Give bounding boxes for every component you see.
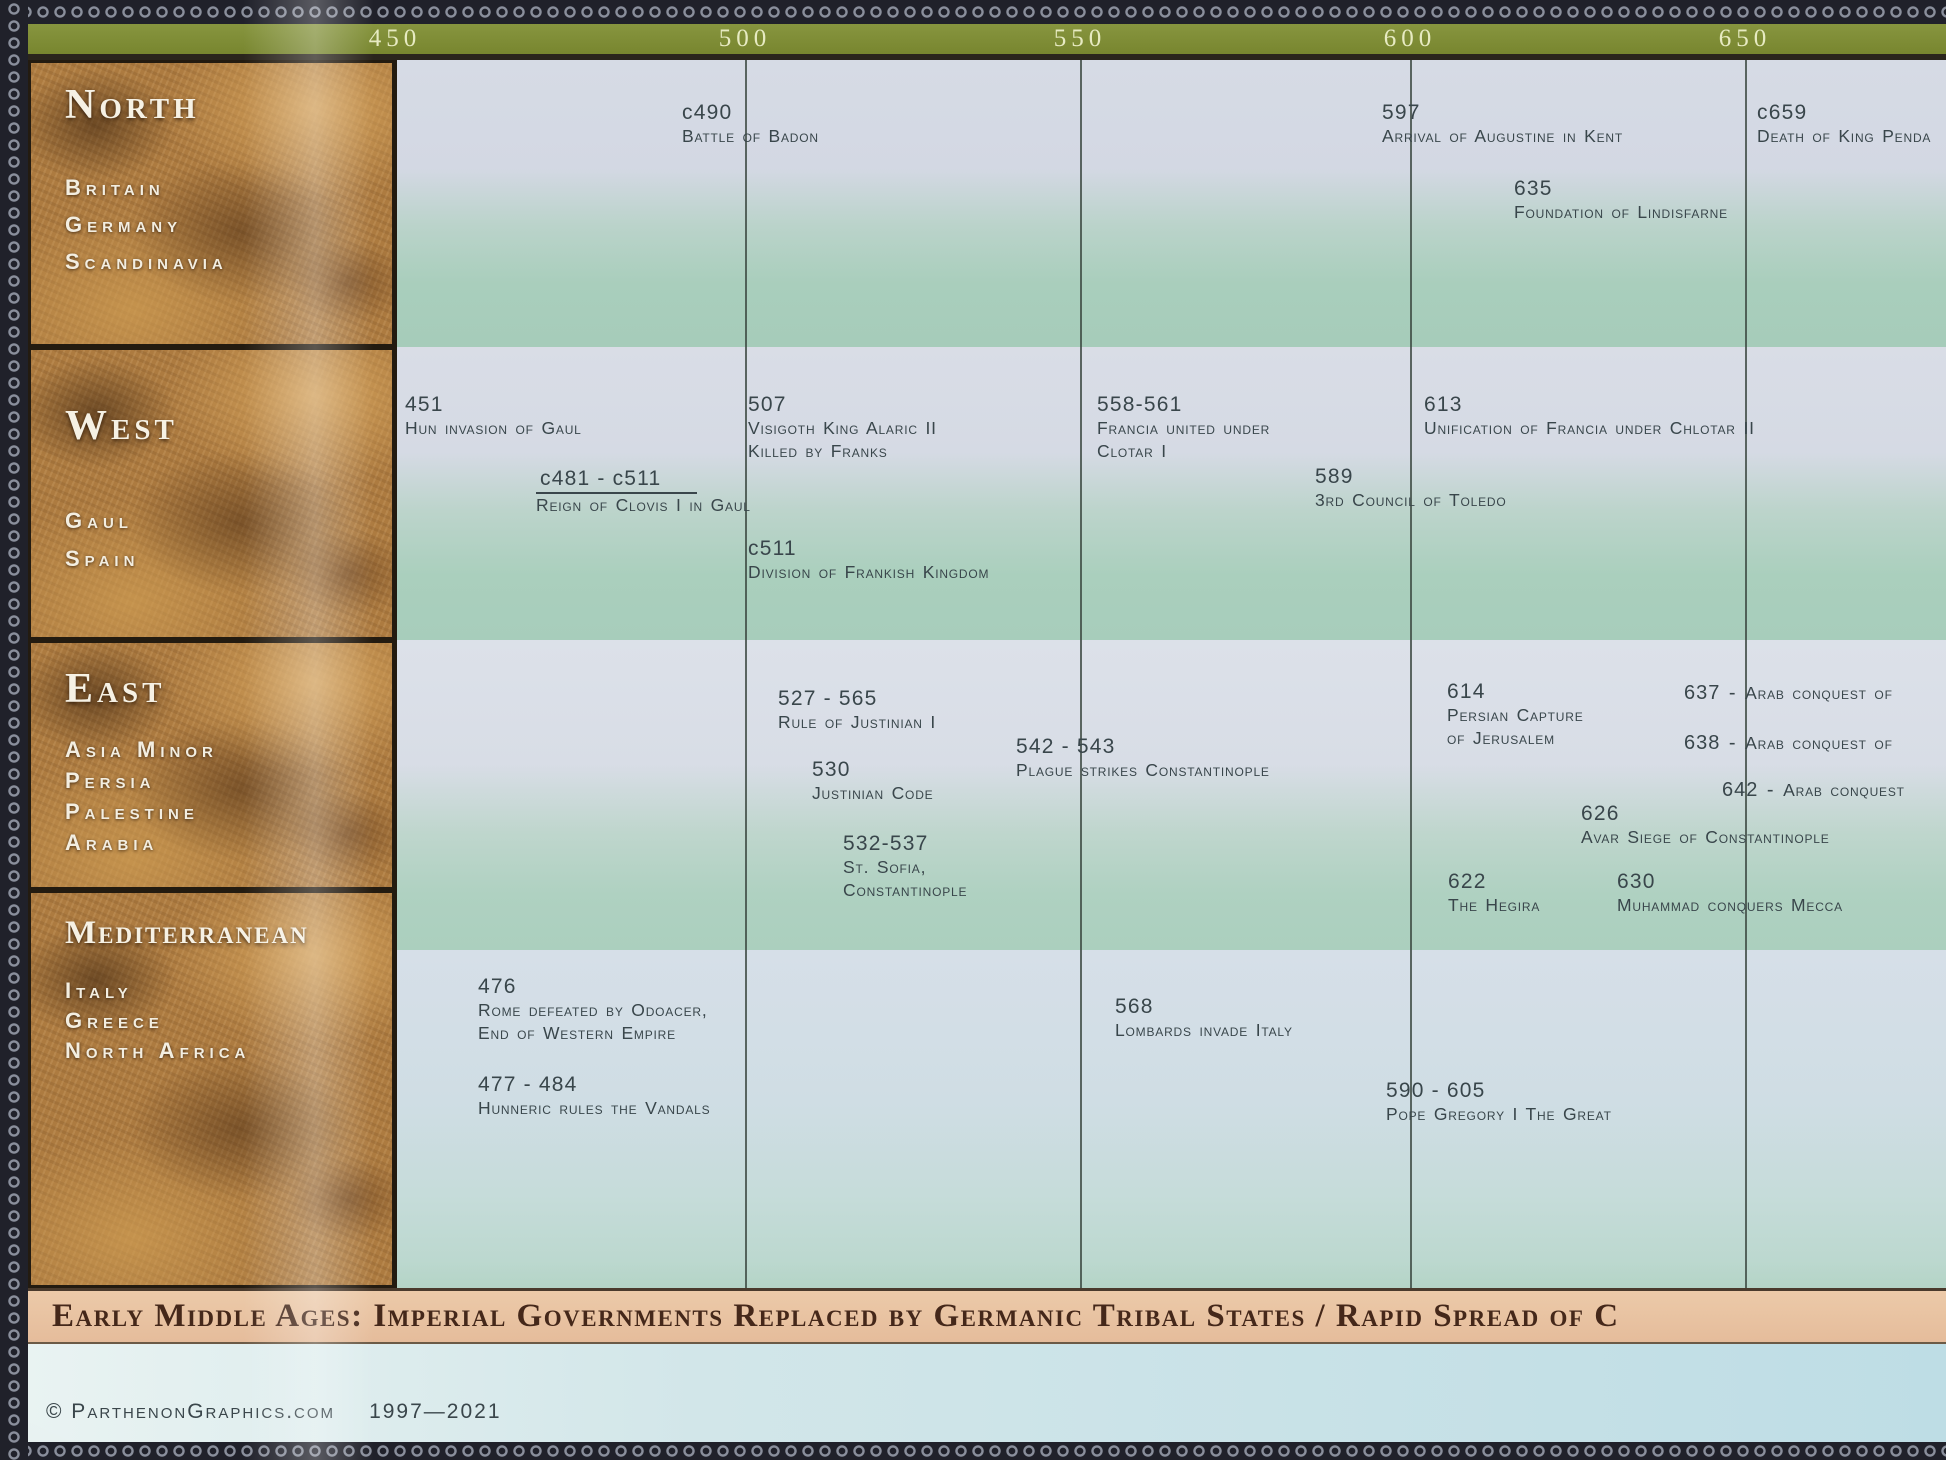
- gridline-500: [745, 60, 747, 1288]
- timeline-event-622: 622The Hegira: [1448, 869, 1540, 917]
- event-label: Avar Siege of Constantinople: [1581, 826, 1830, 849]
- event-label: Visigoth King Alaric II: [748, 417, 937, 440]
- timeline-event-613: 613Unification of Francia under Chlotar …: [1424, 392, 1755, 440]
- event-date: 597: [1382, 100, 1623, 125]
- event-date: 558-561: [1097, 392, 1270, 417]
- year-label-450: 450: [369, 25, 422, 53]
- timeline-event-477-484: 477 - 484Hunneric rules the Vandals: [478, 1072, 710, 1120]
- timeline-poster: NorthBritainGermanyScandinaviaWestGaulSp…: [0, 0, 1946, 1460]
- event-label: Foundation of Lindisfarne: [1514, 201, 1728, 224]
- map-region-scandinavia: Scandinavia: [65, 249, 228, 275]
- map-region-italy: Italy: [65, 978, 133, 1004]
- gridline-550: [1080, 60, 1082, 1288]
- event-date: 542 - 543: [1016, 734, 1270, 759]
- timeline-event-589: 5893rd Council of Toledo: [1315, 464, 1506, 512]
- copyright-years: 1997—2021: [369, 1400, 501, 1423]
- event-date: 637 -: [1684, 682, 1745, 704]
- map-panel-east: EastAsia MinorPersiaPalestineArabia: [28, 640, 397, 890]
- celtic-border-top: [0, 0, 1946, 24]
- event-label: Division of Frankish Kingdom: [748, 561, 989, 584]
- year-label-650: 650: [1719, 25, 1772, 53]
- copyright-text: © ParthenonGraphics.com: [46, 1400, 335, 1423]
- map-region-germany: Germany: [65, 212, 182, 238]
- timeline-event-637: 637 - Arab conquest of: [1684, 682, 1893, 705]
- event-label: Reign of Clovis I in Gaul: [536, 494, 751, 517]
- event-label: Pope Gregory I The Great: [1386, 1103, 1612, 1126]
- celtic-border-left: [0, 0, 28, 1460]
- celtic-border-bottom: [0, 1442, 1946, 1460]
- event-label: The Hegira: [1448, 894, 1540, 917]
- event-date: c659: [1757, 100, 1931, 125]
- map-region-britain: Britain: [65, 175, 165, 201]
- map-panel-med: MediterraneanItalyGreeceNorth Africa: [28, 890, 397, 1288]
- event-date: 568: [1115, 994, 1293, 1019]
- event-date: 476: [478, 974, 708, 999]
- event-date: c511: [748, 536, 989, 561]
- timeline-event-c659: c659Death of King Penda: [1757, 100, 1931, 148]
- timeline-event-558-561: 558-561Francia united underClotar I: [1097, 392, 1270, 463]
- event-label: Muhammad conquers Mecca: [1617, 894, 1843, 917]
- footer-area: © ParthenonGraphics.com1997—2021: [28, 1344, 1946, 1442]
- map-region-asia-minor: Asia Minor: [65, 737, 218, 763]
- event-label: Killed by Franks: [748, 440, 937, 463]
- event-label: Persian Capture: [1447, 704, 1584, 727]
- event-date: 451: [405, 392, 582, 417]
- year-label-500: 500: [719, 25, 772, 53]
- event-label: Plague strikes Constantinople: [1016, 759, 1270, 782]
- map-title-med: Mediterranean: [65, 915, 309, 952]
- event-label: of Jerusalem: [1447, 727, 1584, 750]
- event-label: Arab conquest of: [1745, 733, 1893, 753]
- event-date: 530: [812, 757, 933, 782]
- timeline-event-630: 630Muhammad conquers Mecca: [1617, 869, 1843, 917]
- event-label: Arab conquest: [1783, 780, 1905, 800]
- timeline-event-530: 530Justinian Code: [812, 757, 933, 805]
- map-region-greece: Greece: [65, 1008, 164, 1034]
- map-region-gaul: Gaul: [65, 508, 133, 534]
- event-label: Justinian Code: [812, 782, 933, 805]
- event-date: 613: [1424, 392, 1755, 417]
- timeline-event-568: 568Lombards invade Italy: [1115, 994, 1293, 1042]
- event-text: 637 - Arab conquest of: [1684, 682, 1893, 705]
- timeline-event-626: 626Avar Siege of Constantinople: [1581, 801, 1830, 849]
- timeline-event-642: 642 - Arab conquest: [1722, 779, 1905, 802]
- event-label: Clotar I: [1097, 440, 1270, 463]
- event-date: 477 - 484: [478, 1072, 710, 1097]
- timeline-event-c511: c511Division of Frankish Kingdom: [748, 536, 989, 584]
- year-label-550: 550: [1054, 25, 1107, 53]
- map-title-west: West: [65, 402, 178, 450]
- event-date: 630: [1617, 869, 1843, 894]
- event-date: 642 -: [1722, 779, 1783, 801]
- timeline-event-507: 507Visigoth King Alaric IIKilled by Fran…: [748, 392, 937, 463]
- event-date: 635: [1514, 176, 1728, 201]
- timeline-event-635: 635Foundation of Lindisfarne: [1514, 176, 1728, 224]
- event-label: Constantinople: [843, 879, 967, 902]
- event-date: 532-537: [843, 831, 967, 856]
- timeline-event-614: 614Persian Captureof Jerusalem: [1447, 679, 1584, 750]
- event-label: Arrival of Augustine in Kent: [1382, 125, 1623, 148]
- event-date: 527 - 565: [778, 686, 936, 711]
- event-date: 590 - 605: [1386, 1078, 1612, 1103]
- event-label: Hunneric rules the Vandals: [478, 1097, 710, 1120]
- event-label: Rome defeated by Odoacer,: [478, 999, 708, 1022]
- event-date: 638 -: [1684, 732, 1745, 754]
- timeline-event-638: 638 - Arab conquest of: [1684, 732, 1893, 755]
- timeline-event-532-537: 532-537St. Sofia,Constantinople: [843, 831, 967, 902]
- map-panel-west: WestGaulSpain: [28, 347, 397, 640]
- timeline-event-597: 597Arrival of Augustine in Kent: [1382, 100, 1623, 148]
- event-date: 614: [1447, 679, 1584, 704]
- timeline-event-527-565: 527 - 565Rule of Justinian I: [778, 686, 936, 734]
- timeline-event-c481-c511: c481 - c511Reign of Clovis I in Gaul: [536, 466, 751, 517]
- event-label: Lombards invade Italy: [1115, 1019, 1293, 1042]
- event-text: 638 - Arab conquest of: [1684, 732, 1893, 755]
- map-region-arabia: Arabia: [65, 830, 158, 856]
- map-region-spain: Spain: [65, 546, 139, 572]
- map-region-north-africa: North Africa: [65, 1038, 250, 1064]
- timeline-event-c490: c490Battle of Badon: [682, 100, 819, 148]
- event-label: Hun invasion of Gaul: [405, 417, 582, 440]
- map-panel-north: NorthBritainGermanyScandinavia: [28, 60, 397, 347]
- event-label: Battle of Badon: [682, 125, 819, 148]
- era-banner: Early Middle Ages: Imperial Governments …: [28, 1288, 1946, 1344]
- year-label-600: 600: [1384, 25, 1437, 53]
- event-label: St. Sofia,: [843, 856, 967, 879]
- timeline-event-451: 451Hun invasion of Gaul: [405, 392, 582, 440]
- copyright-line: © ParthenonGraphics.com1997—2021: [46, 1400, 502, 1424]
- event-label: Arab conquest of: [1745, 683, 1893, 703]
- event-date: c490: [682, 100, 819, 125]
- event-date: 626: [1581, 801, 1830, 826]
- timeline-event-542-543: 542 - 543Plague strikes Constantinople: [1016, 734, 1270, 782]
- event-text: 642 - Arab conquest: [1722, 779, 1905, 802]
- event-label: Death of King Penda: [1757, 125, 1931, 148]
- gridline-650: [1745, 60, 1747, 1288]
- map-region-palestine: Palestine: [65, 799, 199, 825]
- year-header-bar: 450500550600650: [28, 24, 1946, 60]
- event-date: c481 - c511: [536, 466, 697, 494]
- map-region-persia: Persia: [65, 768, 156, 794]
- event-label: Unification of Francia under Chlotar II: [1424, 417, 1755, 440]
- event-label: 3rd Council of Toledo: [1315, 489, 1506, 512]
- event-date: 589: [1315, 464, 1506, 489]
- timeline-event-476: 476Rome defeated by Odoacer,End of Weste…: [478, 974, 708, 1045]
- event-label: Francia united under: [1097, 417, 1270, 440]
- timeline-event-590-605: 590 - 605Pope Gregory I The Great: [1386, 1078, 1612, 1126]
- map-title-north: North: [65, 81, 200, 129]
- event-date: 622: [1448, 869, 1540, 894]
- event-date: 507: [748, 392, 937, 417]
- map-title-east: East: [65, 665, 165, 713]
- event-label: End of Western Empire: [478, 1022, 708, 1045]
- event-label: Rule of Justinian I: [778, 711, 936, 734]
